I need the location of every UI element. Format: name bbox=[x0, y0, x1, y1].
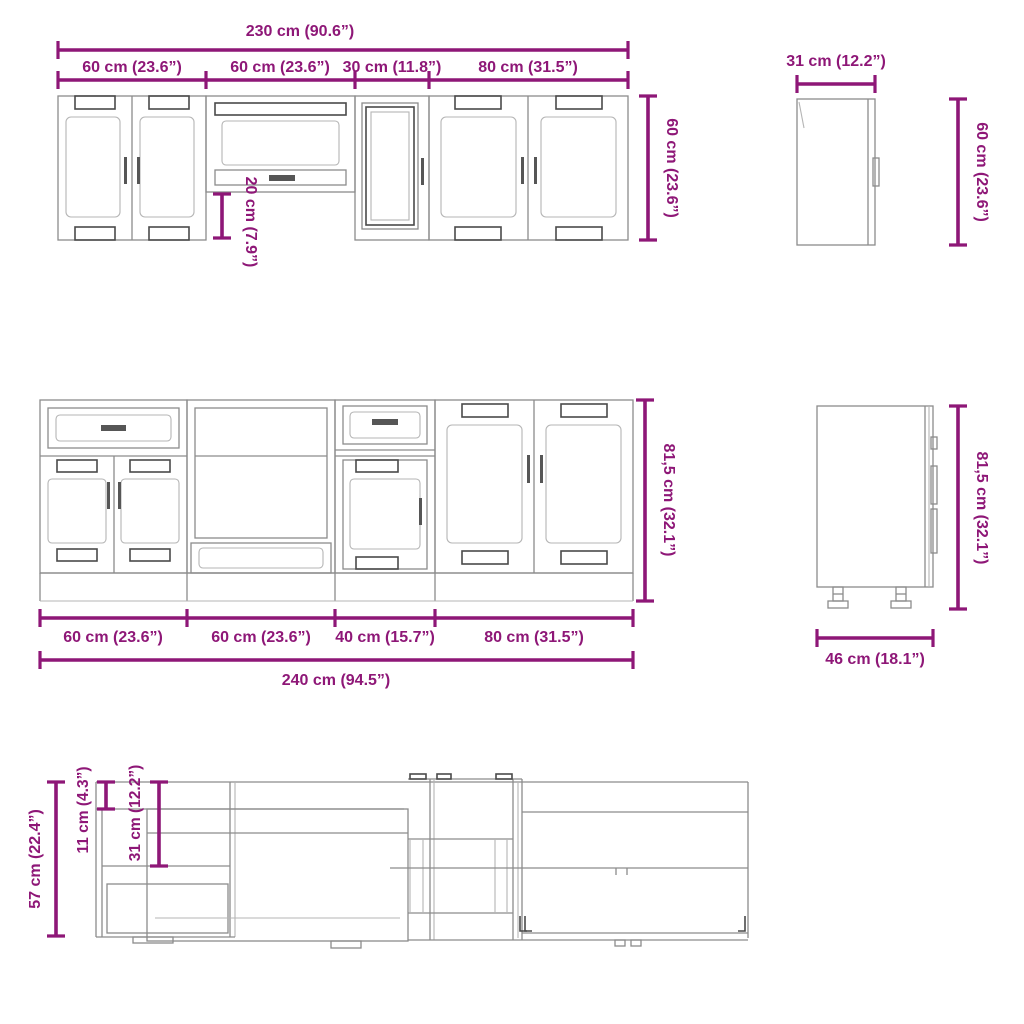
door-handle-icon bbox=[419, 498, 422, 525]
drawer-handle-icon bbox=[101, 425, 126, 431]
door-handle-icon bbox=[521, 157, 524, 184]
base-side-depth-label: 46 cm (18.1”) bbox=[825, 651, 925, 668]
base-side-body bbox=[817, 406, 937, 587]
door-handle-icon bbox=[527, 455, 530, 483]
door-handle-icon bbox=[269, 175, 295, 181]
wall-height-dimension: 60 cm (23.6”) bbox=[639, 96, 680, 240]
base-segment3-label: 40 cm (15.7”) bbox=[335, 629, 435, 646]
door-handle-icon bbox=[137, 157, 140, 184]
wall-cabinet-60-two-doors bbox=[58, 96, 206, 240]
base-total-width-label: 240 cm (94.5”) bbox=[282, 672, 391, 689]
base-segment2-label: 60 cm (23.6”) bbox=[211, 629, 311, 646]
base-side-height-label: 81,5 cm (32.1”) bbox=[973, 452, 990, 565]
drawer-handle-icon bbox=[372, 419, 398, 425]
base-height-label: 81,5 cm (32.1”) bbox=[660, 444, 677, 557]
top-view-linework bbox=[96, 774, 748, 948]
base-total-width-dimension: 240 cm (94.5”) bbox=[40, 651, 633, 689]
door-handle-icon bbox=[118, 482, 121, 509]
wall-side-depth-dimension: 31 cm (12.2”) bbox=[786, 53, 886, 93]
wall-cabinet-60-hood bbox=[206, 96, 355, 192]
base-side-depth-dimension: 46 cm (18.1”) bbox=[817, 629, 933, 668]
top-view-door-depth-dimension: 11 cm (4.3”) bbox=[75, 766, 115, 853]
base-cabinet-60-drawer-doors bbox=[40, 400, 187, 573]
base-plinth bbox=[40, 573, 633, 601]
base-side-feet bbox=[828, 587, 911, 608]
base-cabinets-front-view: 81,5 cm (32.1”) 60 cm (23.6”) 60 cm (23.… bbox=[40, 400, 677, 689]
base-segment-dimensions: 60 cm (23.6”) 60 cm (23.6”) 40 cm (15.7”… bbox=[40, 609, 633, 646]
wall-side-depth-label: 31 cm (12.2”) bbox=[786, 53, 886, 70]
door-handle-icon bbox=[421, 158, 424, 185]
wall-cabinet-side-view: 31 cm (12.2”) 60 cm (23.6”) bbox=[786, 53, 990, 245]
wall-cabinet-80-two-doors bbox=[429, 96, 628, 240]
wall-total-width-label: 230 cm (90.6”) bbox=[246, 23, 355, 40]
wall-segment2-label: 60 cm (23.6”) bbox=[230, 59, 330, 76]
wall-segment3-label: 30 cm (11.8”) bbox=[343, 59, 442, 76]
door-handle-icon bbox=[931, 437, 937, 449]
base-cabinet-60-open bbox=[187, 400, 335, 573]
base-cabinet-80-two-doors bbox=[435, 400, 633, 573]
diagram-canvas: 230 cm (90.6”) 60 cm (23.6”) 60 cm (23.6… bbox=[0, 0, 1024, 1024]
wall-side-body bbox=[797, 99, 879, 245]
wall-segment-dimensions: 60 cm (23.6”) 60 cm (23.6”) 30 cm (11.8”… bbox=[58, 59, 628, 89]
door-handle-icon bbox=[124, 157, 127, 184]
wall-segment4-label: 80 cm (31.5”) bbox=[478, 59, 578, 76]
cabinet-top-view: 57 cm (22.4”) 11 cm (4.3”) 31 cm (12.2”) bbox=[27, 765, 748, 948]
top-view-overall-depth-dimension: 57 cm (22.4”) bbox=[27, 782, 65, 936]
wall-total-width-dimension: 230 cm (90.6”) bbox=[58, 23, 628, 59]
base-segment4-label: 80 cm (31.5”) bbox=[484, 629, 584, 646]
hinge-icon bbox=[931, 509, 937, 553]
top-view-carcass-depth-label: 31 cm (12.2”) bbox=[127, 765, 144, 862]
base-side-height-dimension: 81,5 cm (32.1”) bbox=[949, 406, 990, 609]
hinge-icon bbox=[931, 466, 937, 504]
wall-segment1-label: 60 cm (23.6”) bbox=[82, 59, 182, 76]
cabinet-dimension-diagram: 230 cm (90.6”) 60 cm (23.6”) 60 cm (23.6… bbox=[0, 0, 1024, 1024]
wall-cabinet-30-narrow bbox=[355, 96, 429, 240]
base-height-dimension: 81,5 cm (32.1”) bbox=[636, 400, 677, 601]
wall-height-label: 60 cm (23.6”) bbox=[663, 118, 680, 218]
base-segment1-label: 60 cm (23.6”) bbox=[63, 629, 163, 646]
base-cabinet-side-view: 46 cm (18.1”) 81,5 cm (32.1”) bbox=[817, 406, 990, 668]
door-handle-icon bbox=[540, 455, 543, 483]
wall-gap-label: 20 cm (7.9”) bbox=[242, 177, 259, 268]
wall-side-height-dimension: 60 cm (23.6”) bbox=[949, 99, 990, 245]
wall-side-height-label: 60 cm (23.6”) bbox=[973, 122, 990, 222]
door-handle-icon bbox=[107, 482, 110, 509]
wall-gap-dimension: 20 cm (7.9”) bbox=[213, 177, 259, 268]
wall-cabinets-front-view: 230 cm (90.6”) 60 cm (23.6”) 60 cm (23.6… bbox=[58, 23, 680, 267]
top-view-door-depth-label: 11 cm (4.3”) bbox=[75, 766, 92, 853]
base-cabinet-40-drawer-door bbox=[335, 400, 435, 573]
door-handle-icon bbox=[534, 157, 537, 184]
door-handle-icon bbox=[873, 158, 879, 186]
top-view-overall-depth-label: 57 cm (22.4”) bbox=[27, 809, 44, 909]
